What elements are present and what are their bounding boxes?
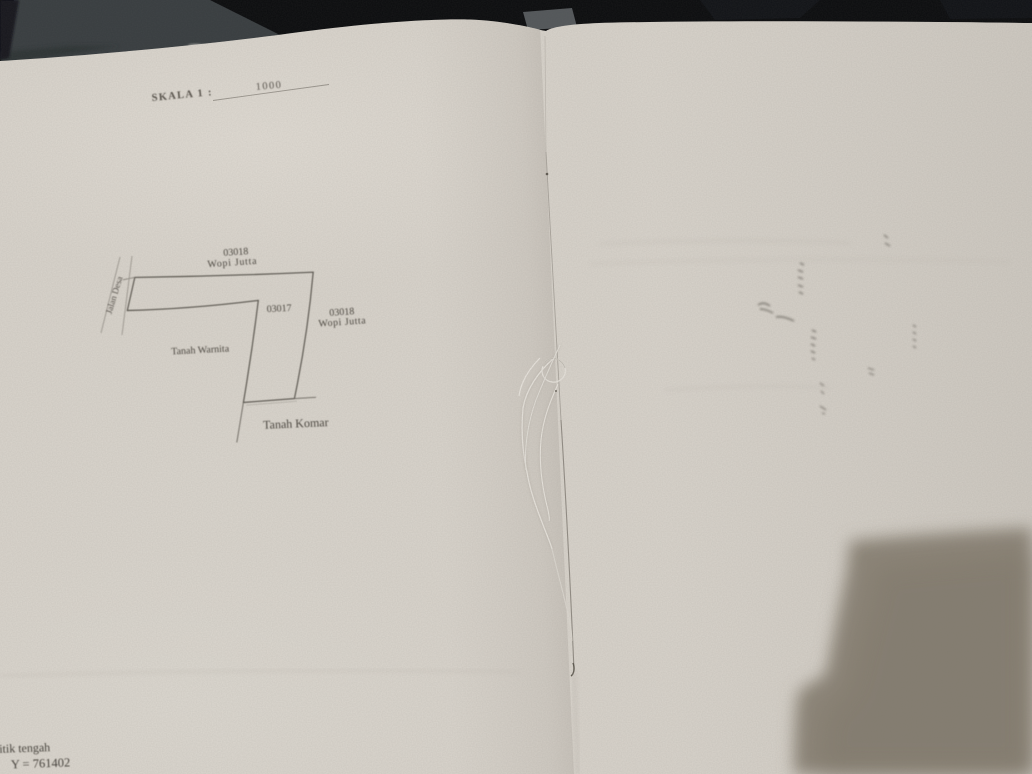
svg-text:titik tengah: titik tengah bbox=[0, 740, 50, 756]
svg-text:Y = 761402: Y = 761402 bbox=[11, 755, 71, 771]
svg-text:Tanah Komar: Tanah Komar bbox=[263, 415, 329, 432]
svg-text:03017: 03017 bbox=[266, 303, 292, 315]
